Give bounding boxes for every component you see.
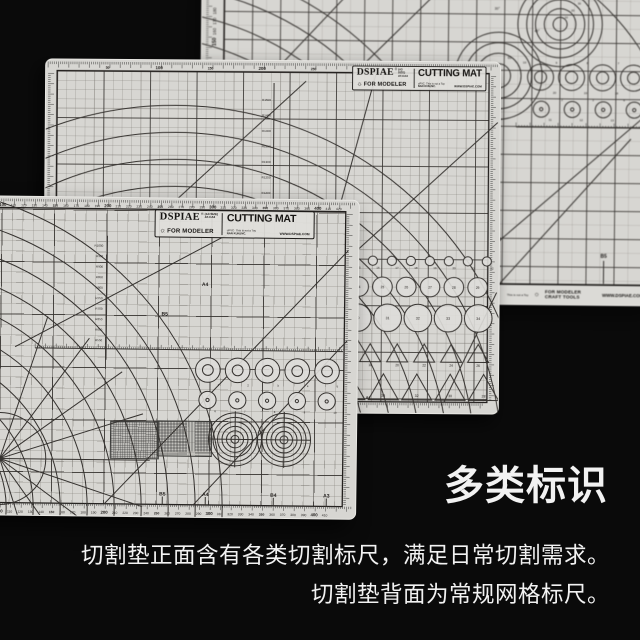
tagline: FOR MODELER: [167, 228, 214, 235]
model-code: AT-CA3: [205, 216, 218, 219]
matA-radius-labels-5: R750: [96, 296, 104, 300]
matB-small-triangles-tri-3: [441, 344, 462, 362]
matA-a4-label: A4: [202, 282, 209, 288]
matC-circle-row2-inner-3: [633, 109, 636, 112]
matC-toy-note: This is not a Toy: [507, 292, 529, 296]
matC-left-ruler-num-1: 160: [212, 27, 217, 35]
matB-small-circles-circle-2: [387, 256, 396, 265]
matA-bottom-ruler-num-9: 190: [91, 511, 97, 515]
matA-angle-fan-line-1: [0, 337, 89, 459]
matA-top-ruler-num-8: 180: [84, 204, 90, 208]
matA-bottom-ruler-num-29: 390: [301, 513, 307, 517]
matA-bottom-ruler-num-14: 240: [143, 511, 149, 515]
matC-circle-row1-m-2: 18: [615, 91, 619, 95]
matC-bullseye: [517, 0, 602, 67]
matB-big-circles-n-2: 32: [416, 316, 420, 320]
matB-small-triangles-n-0: 18: [368, 363, 372, 367]
matC-bullseye-arc-2: [535, 0, 585, 49]
matA-bottom-ruler: 1001101201301401501601701801902002102202…: [0, 508, 328, 517]
matA-radius-labels-4: R800: [96, 286, 104, 290]
gear-icon: ☼: [160, 227, 167, 234]
matA-top-ruler-num-21: 310: [221, 206, 227, 210]
matA-radius-labels-1: R950: [96, 254, 104, 258]
matA-radius-labels-2: R900: [96, 265, 104, 269]
matC-angle-labels-2: 45°: [534, 29, 540, 33]
matC-circle-row1-inner-3: [627, 72, 639, 84]
matC-bullseye-labels-1: 20: [571, 9, 575, 13]
maker-name: NAN KUN,INC.: [227, 231, 246, 235]
matB-large-triangles-n-2: 32: [415, 394, 419, 398]
matA-ring-row1-n-1: 2: [247, 383, 249, 387]
matB-big-circles-n-4: 34: [476, 317, 480, 321]
matC-bullseye-labels-0: 10: [564, 15, 568, 19]
matC-left-ruler-num-3: 180: [212, 7, 217, 15]
website: WWW.DSPIAE.COM: [454, 85, 482, 89]
matA-ring-row1-n-3: 4: [307, 384, 309, 388]
caption-line1: 切割垫正面含有各类切割标尺，满足日常切割需求。: [81, 538, 610, 570]
matA-top-ruler-num-20: 300: [209, 205, 217, 210]
matB-radius-labels-2: R1400: [262, 129, 271, 133]
matA-bottom-ruler-num-13: 230: [133, 511, 139, 515]
matC-label-65: 65: [508, 56, 512, 60]
matA-top-ruler-num-28: 380: [294, 207, 300, 211]
matA-target-axes-line-3: [257, 440, 311, 441]
matC-circle-row1-n-2: 8: [587, 61, 589, 65]
matB-small-triangles-tri-0: [360, 344, 381, 362]
matA-ring-row2-inner-4: [325, 400, 328, 403]
matA-size-a4: A4: [202, 492, 209, 498]
matB-radius-labels-6: R1200: [261, 191, 270, 195]
matA-angle-fan: [0, 316, 151, 519]
matC-circle-row1-n-1: 9: [556, 61, 558, 65]
matB-small-circles-circle-7: [482, 257, 491, 266]
matB-small-triangles-tri-1: [387, 344, 408, 362]
matA-bottom-ruler-num-24: 340: [248, 513, 254, 517]
matC-circle-row2-n-3: 4: [623, 99, 625, 103]
tagline: FOR MODELER: [364, 82, 407, 88]
matB-small-triangles-n-4: 26: [476, 364, 480, 368]
matA-b5-label: B5: [161, 311, 168, 317]
matA-ring-row2-inner-1: [236, 399, 239, 402]
matA-bottom-ruler-num-16: 260: [164, 511, 170, 515]
matA-ring-row2-n-1: 7: [244, 410, 246, 414]
matB-big-circles-n-1: 31: [386, 316, 390, 320]
matC-circle-row2-m-0: 11: [549, 118, 552, 122]
matB-radius-labels-0: R1500: [262, 98, 271, 102]
matB-diagonal-lines-line-1: [345, 122, 498, 263]
matB-small-circles-circle-5: [444, 257, 453, 266]
matC-left-ruler-num-0: 150: [212, 37, 218, 46]
matA-bottom-ruler-num-26: 360: [269, 513, 275, 517]
matC-circle-row2-n-0: 1: [530, 98, 532, 102]
matA-top-ruler-num-27: 370: [284, 206, 290, 210]
matA-top-ruler-num-14: 240: [147, 205, 153, 209]
matB-radius-labels-5: R1250: [262, 175, 271, 179]
matB-small-circles-circle-1: [368, 256, 377, 265]
matA-top-ruler-num-22: 320: [231, 206, 237, 210]
matA-bottom-ruler-num-27: 370: [280, 513, 286, 517]
matB-small-circles-n-3: 18: [414, 266, 418, 270]
matA-ring-row2-n-0: 6: [214, 409, 216, 413]
matA-top-ruler-num-29: 390: [305, 207, 311, 211]
caption-line2: 切割垫背面为常规网格标尺。: [311, 577, 610, 609]
gear-icon: ☼: [357, 81, 363, 87]
matC-circle-row1-inner-1: [565, 71, 577, 83]
caption-title: 多类标识: [444, 453, 608, 511]
matA-radius-labels-7: R650: [95, 317, 103, 321]
matA-diagonal-lines-line-0: [104, 248, 348, 507]
matA-ring-row1: 12345: [195, 358, 339, 389]
matA-top-ruler-num-12: 220: [126, 204, 132, 208]
maker-name: NAN KUN,INC.: [418, 84, 436, 88]
matA-arcs-arc-3: [0, 346, 62, 518]
website: WWW.DSPIAE.COM: [280, 232, 310, 236]
matA-ring-row2-inner-0: [206, 398, 209, 401]
matA-top-ruler-num-31: 410: [326, 207, 332, 211]
matA-ring-row2-n-2: 8: [274, 410, 276, 414]
matA-size-a3: A3: [323, 493, 330, 499]
matA-bottom-ruler-num-8: 180: [80, 510, 86, 514]
matC-bottom-brand: FOR MODELER CRAFT TOOLS: [545, 290, 581, 300]
matB-big-circles-n-3: 33: [446, 317, 450, 321]
matA-ring-row2-n-3: 9: [304, 410, 306, 414]
matA-ring-row1-circle-3: [285, 359, 310, 384]
matB-header-left: DSPIAE ® (A3 SIZE) AT-CA3 ☼ FOR MODELER: [357, 68, 415, 88]
matA-bottom-ruler-num-17: 270: [175, 512, 181, 516]
matC-circle-row1-inner-0: [534, 71, 546, 83]
matC-angle-labels-1: 30°: [495, 7, 501, 11]
matB-radius-labels-4: R1300: [262, 160, 271, 164]
matC-circle-row2-n-1: 2: [561, 98, 563, 102]
matA-top-ruler-num-25: 350: [263, 206, 269, 210]
matC-circle-row1-circle-3: [620, 65, 640, 91]
matC-circle-row2-inner-2: [602, 108, 605, 111]
matA-size-b5: B5: [159, 491, 166, 497]
matA-ring-row1-circle-0: [195, 358, 220, 383]
product-photo: 150160170180 102030 65 1020919818717 111…: [0, 0, 640, 640]
matA-top-ruler-num-24: 340: [252, 206, 258, 210]
matA-bottom-ruler-num-1: 110: [7, 510, 12, 514]
matA-top-ruler-num-6: 160: [63, 204, 69, 208]
matA-top-ruler-num-17: 270: [179, 205, 185, 209]
matC-circle-row2-m-2: 13: [611, 118, 615, 122]
matA-top-ruler-num-2: 120: [21, 203, 27, 207]
matB-small-circles-n-5: 20: [452, 266, 456, 270]
matB-small-triangles-n-2: 22: [422, 363, 426, 367]
matC-mid-ruler: [516, 127, 640, 128]
matB-large-triangles-n-1: 34: [381, 394, 385, 398]
matB-small-triangles-n-3: 24: [449, 364, 453, 368]
matA-bottom-ruler-num-12: 220: [122, 511, 128, 515]
matC-circle-row1-circle-2: [589, 65, 615, 91]
matA-header-right: CUTTING MAT uPVC· This is not a Toy NAN …: [227, 213, 310, 236]
matB-medium-circles-n-1: 25: [381, 285, 385, 289]
matA-top-ruler-num-18: 280: [189, 205, 195, 209]
matC-b5-label: B5: [600, 254, 607, 260]
matB-small-circles-n-7: 22: [490, 267, 494, 271]
matA-ring-row1-circle-4: [315, 359, 340, 384]
matA-bottom-ruler-num-30: 400: [310, 512, 318, 517]
matA-bottom-ruler-num-11: 210: [112, 511, 118, 515]
matA-ring-row1-circle-1: [225, 358, 250, 383]
matA-target-axes-line-2: [208, 439, 262, 440]
matA-mid-ruler-ticks: [35, 343, 342, 351]
matB-radius-labels-3: R1350: [262, 144, 271, 148]
matA-ring-row2-inner-2: [265, 399, 268, 402]
matC-circle-row2-inner-1: [571, 108, 574, 111]
matA-ring-row1-n-2: 3: [277, 384, 279, 388]
matA-top-ruler-num-30: 400: [314, 206, 322, 211]
matA-ring-row2-n-4: 10: [333, 411, 337, 415]
matA-radius-labels-0: R1000: [94, 244, 103, 248]
matB-a4-label: A4: [366, 396, 370, 400]
matB-small-circles-n-4: 19: [433, 266, 437, 270]
matC-circle-row2: 111212313414: [530, 98, 640, 123]
matA-bottom-ruler-num-2: 120: [17, 510, 23, 514]
matA-bottom-ruler-num-18: 280: [185, 512, 191, 516]
matC-brand-line2: CRAFT TOOLS: [545, 294, 580, 299]
matC-circle-row1-n-3: 7: [618, 61, 620, 65]
matC-circle-row2-n-2: 3: [592, 98, 594, 102]
matA-top-ruler-num-11: 210: [116, 204, 122, 208]
matC-circle-row1: 1020919818717: [523, 61, 640, 96]
matA-printed-graphics: 1001101201301401501601701801902002102202…: [0, 195, 359, 519]
matB-small-circles-n-2: 17: [395, 266, 399, 270]
matB-small-triangles-n-1: 20: [395, 363, 399, 367]
matA-radius-labels-6: R700: [95, 307, 103, 311]
matA-radius-labels-3: R850: [96, 275, 104, 279]
matA-top-ruler-num-7: 170: [74, 204, 80, 208]
matB-medium-circles-n-5: 29: [476, 286, 480, 290]
matA-size-b4: B4: [270, 493, 277, 499]
matA-top-ruler-num-3: 130: [32, 203, 38, 207]
matB-top-ruler-num-2: 150: [208, 67, 214, 71]
matA-bottom-ruler-num-0: 100: [0, 508, 3, 513]
matA-radius-labels-9: R550: [95, 338, 103, 342]
matC-circle-row1-m-0: 20: [553, 91, 557, 95]
matA-radius-labels-8: R600: [95, 328, 103, 332]
matA-header-left: DSPIAE ® (A3 SIZE) AT-CA3 ☼ FOR MODELER: [160, 212, 224, 235]
matC-circle-row1-inner-2: [596, 72, 608, 84]
registered-mark: ®: [395, 69, 397, 72]
matB-top-ruler-num-4: 250: [311, 67, 317, 71]
registered-mark: ®: [201, 213, 204, 217]
matB-small-triangles: 1820222426: [360, 344, 489, 368]
matA-top-ruler-num-5: 150: [53, 204, 59, 208]
matB-small-circles-circle-3: [406, 256, 415, 265]
matC-site: WWW.DSPIAE.COM: [602, 293, 640, 298]
matB-small-circles-n-1: 16: [376, 266, 380, 270]
matB-header: DSPIAE ® (A3 SIZE) AT-CA3 ☼ FOR MODELER …: [352, 66, 486, 92]
matA-top-ruler-num-16: 260: [168, 205, 174, 209]
cutting-mat-front: 1001101201301401501601701801902002102202…: [0, 194, 360, 520]
matA-ring-row1-n-4: 5: [337, 384, 339, 388]
matC-protractor-arc: [402, 0, 640, 69]
matA-top-ruler-num-13: 230: [137, 205, 143, 209]
matB-small-circles-n-6: 21: [471, 267, 475, 271]
matA-top-ruler-num-9: 190: [95, 204, 101, 208]
gear-icon: ☼: [533, 291, 539, 298]
product-name: CUTTING MAT: [418, 69, 482, 79]
matA-arcs-arc-7: [0, 237, 171, 519]
matB-large-triangles-n-3: 30: [448, 394, 452, 398]
matA-bottom-ruler-num-28: 380: [290, 513, 296, 517]
matA-top-ruler-num-32: 420: [336, 207, 342, 211]
matA-diagonal-lines-line-1: [15, 233, 226, 350]
matC-circle-row2-m-1: 12: [580, 118, 584, 122]
dspiae-logo: DSPIAE: [160, 212, 200, 223]
matA-bottom-ruler-num-22: 320: [227, 512, 233, 516]
matB-small-triangles-tri-2: [414, 344, 435, 362]
matA-top-ruler-num-15: 250: [158, 205, 164, 209]
matA-bottom-ruler-num-10: 200: [100, 510, 108, 515]
matA-ring-row2-inner-3: [295, 399, 298, 402]
matC-diagonal-lines-line-1: [499, 138, 631, 285]
matB-medium-circles-n-3: 27: [428, 285, 432, 289]
matA-bottom-ruler-num-20: 300: [205, 511, 213, 516]
matC-bullseye-arc-1: [544, 8, 576, 40]
matB-medium-circles-n-4: 28: [452, 286, 456, 290]
matB-medium-circles: 242526272829: [349, 277, 488, 298]
matB-big-circles: 3031323334: [344, 304, 493, 333]
matA-angle-fan-line-4: [0, 458, 150, 460]
matC-circle-row2-inner-0: [540, 108, 543, 111]
matC-circle-row1-circle-1: [558, 64, 584, 90]
matB-large-triangles-n-4: 28: [481, 394, 485, 398]
matB-medium-circles-n-2: 26: [404, 285, 408, 289]
matB-top-ruler-num-0: 50: [106, 66, 110, 70]
matB-small-circles-circle-4: [425, 256, 434, 265]
matA-top-ruler-num-19: 290: [200, 205, 206, 209]
matB-small-circles: 1516171819202122: [349, 256, 494, 271]
matC-circle-row1-n-0: 10: [523, 61, 527, 65]
matA-bottom-ruler-num-19: 290: [196, 512, 202, 516]
matA-bottom-ruler-num-5: 150: [49, 510, 55, 514]
matA-ring-row1-circle-2: [255, 358, 280, 383]
matB-top-ruler-num-3: 200: [258, 66, 266, 71]
matA-header: DSPIAE ® (A3 SIZE) AT-CA3 ☼ FOR MODELER …: [154, 209, 314, 239]
matA-bottom-ruler-num-25: 350: [259, 513, 265, 517]
matA-top-ruler-num-23: 330: [242, 206, 248, 210]
matA-top-ruler-num-26: 360: [273, 206, 279, 210]
matB-top-ruler-num-1: 100: [155, 65, 163, 70]
matB-small-circles-circle-6: [463, 257, 472, 266]
matA-top-ruler-num-10: 200: [104, 203, 112, 208]
dspiae-logo: DSPIAE: [357, 68, 394, 78]
matB-header-right: CUTTING MAT uPVC· This is not a Toy NAN …: [418, 69, 482, 89]
matA-top-ruler-num-4: 140: [42, 203, 48, 207]
matA-bottom-ruler-num-15: 250: [154, 511, 160, 515]
matB-large-triangles: 3634323028: [335, 373, 499, 400]
product-name: CUTTING MAT: [227, 213, 310, 225]
matA-ring-row2: 678910: [199, 391, 337, 414]
matC-bullseye-labels-2: 30: [578, 2, 582, 6]
matC-left-ruler: 150160170180: [212, 7, 218, 46]
matA-bottom-ruler-num-23: 330: [238, 512, 244, 516]
matA-target-axes: [208, 411, 312, 468]
model-code: AT-CA3: [398, 75, 410, 78]
matA-bottom-ruler-num-31: 410: [322, 513, 328, 517]
matC-circle-row1-m-1: 19: [584, 91, 588, 95]
